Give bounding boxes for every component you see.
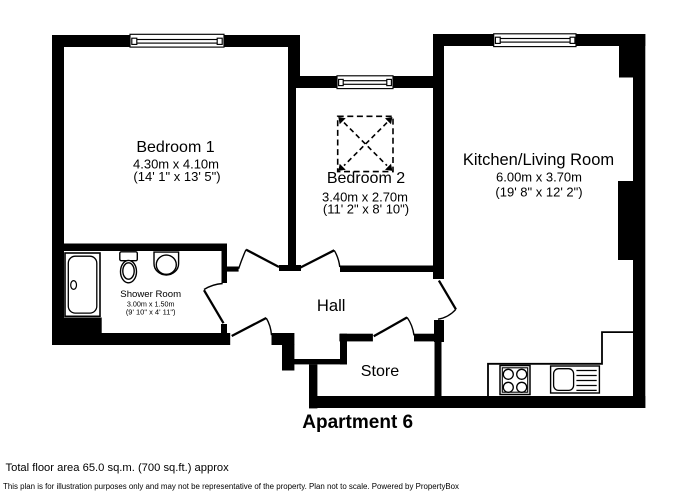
svg-text:(19' 8" x 12' 2"): (19' 8" x 12' 2") (495, 185, 582, 200)
svg-text:Hall: Hall (317, 296, 346, 315)
svg-text:Store: Store (361, 362, 400, 380)
svg-text:(14' 1" x 13' 5"): (14' 1" x 13' 5") (133, 169, 220, 184)
svg-text:Shower Room: Shower Room (120, 289, 181, 300)
svg-text:(11' 2" x 8' 10"): (11' 2" x 8' 10") (323, 201, 409, 216)
svg-text:Bedroom 1: Bedroom 1 (136, 139, 214, 156)
svg-text:6.00m x 3.70m: 6.00m x 3.70m (496, 170, 582, 185)
svg-text:Bedroom 2: Bedroom 2 (327, 170, 405, 187)
svg-text:(9' 10" x 4' 11"): (9' 10" x 4' 11") (126, 308, 176, 317)
svg-text:Apartment 6: Apartment 6 (302, 412, 413, 433)
svg-text:Kitchen/Living Room: Kitchen/Living Room (463, 151, 614, 169)
svg-text:Total floor area 65.0 sq.m. (7: Total floor area 65.0 sq.m. (700 sq.ft.)… (6, 462, 230, 474)
svg-text:This plan is for illustration: This plan is for illustration purposes o… (3, 482, 459, 491)
